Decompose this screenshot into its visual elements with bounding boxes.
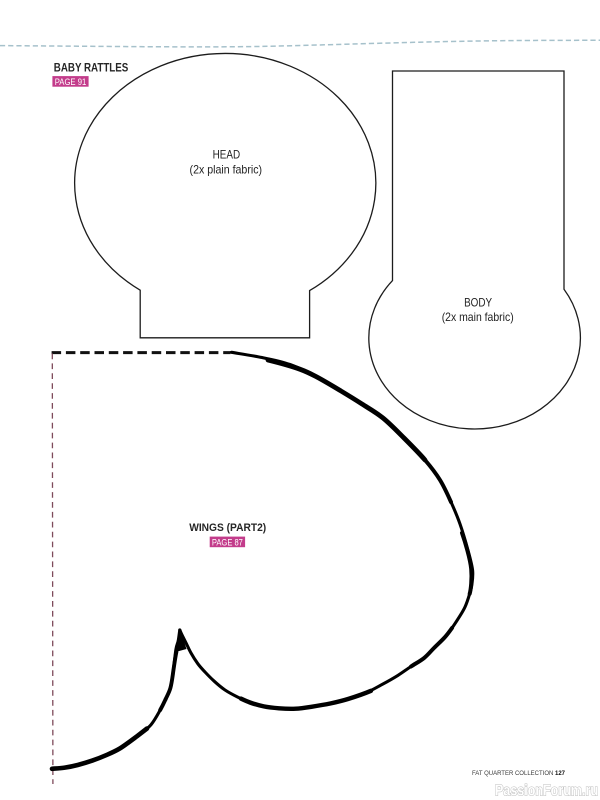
svg-text:BABY RATTLES: BABY RATTLES	[54, 60, 129, 74]
svg-text:PassionForum.ru: PassionForum.ru	[495, 783, 598, 800]
svg-text:FAT QUARTER COLLECTION 127: FAT QUARTER COLLECTION 127	[472, 771, 566, 777]
svg-text:HEAD: HEAD	[213, 147, 241, 161]
svg-text:WINGS (PART2): WINGS (PART2)	[189, 522, 266, 534]
svg-text:PAGE 91: PAGE 91	[55, 77, 87, 87]
svg-text:PAGE 87: PAGE 87	[212, 537, 243, 547]
svg-text:(2x main fabric): (2x main fabric)	[442, 310, 514, 324]
svg-text:(2x plain fabric): (2x plain fabric)	[190, 163, 263, 177]
svg-text:BODY: BODY	[464, 295, 492, 309]
